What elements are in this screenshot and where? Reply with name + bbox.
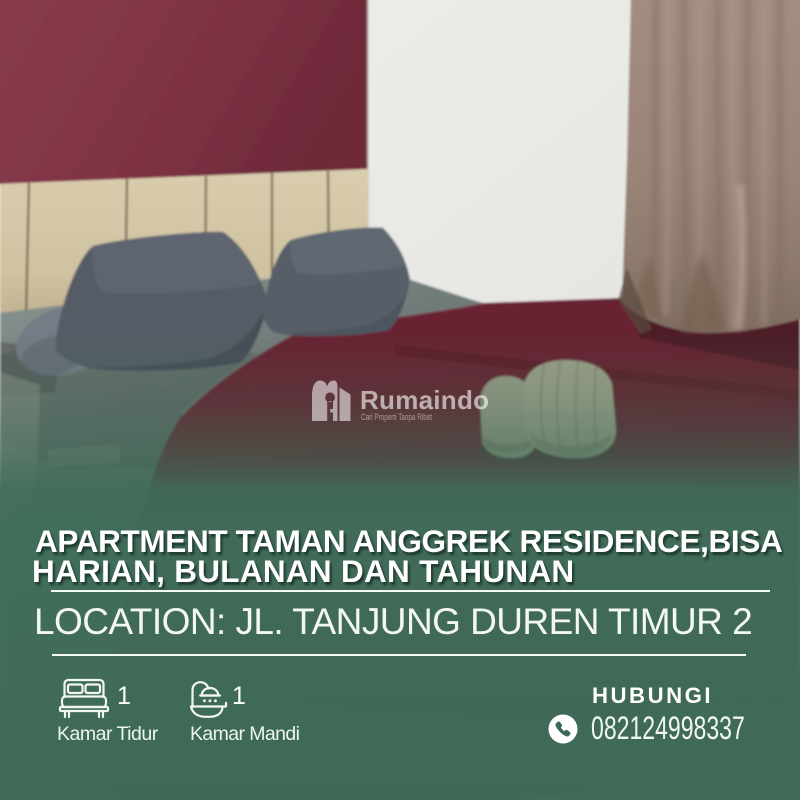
svg-text:Cari Properti Tanpa Ribet: Cari Properti Tanpa Ribet — [361, 412, 432, 422]
svg-text:Rumaindo: Rumaindo — [360, 385, 489, 415]
